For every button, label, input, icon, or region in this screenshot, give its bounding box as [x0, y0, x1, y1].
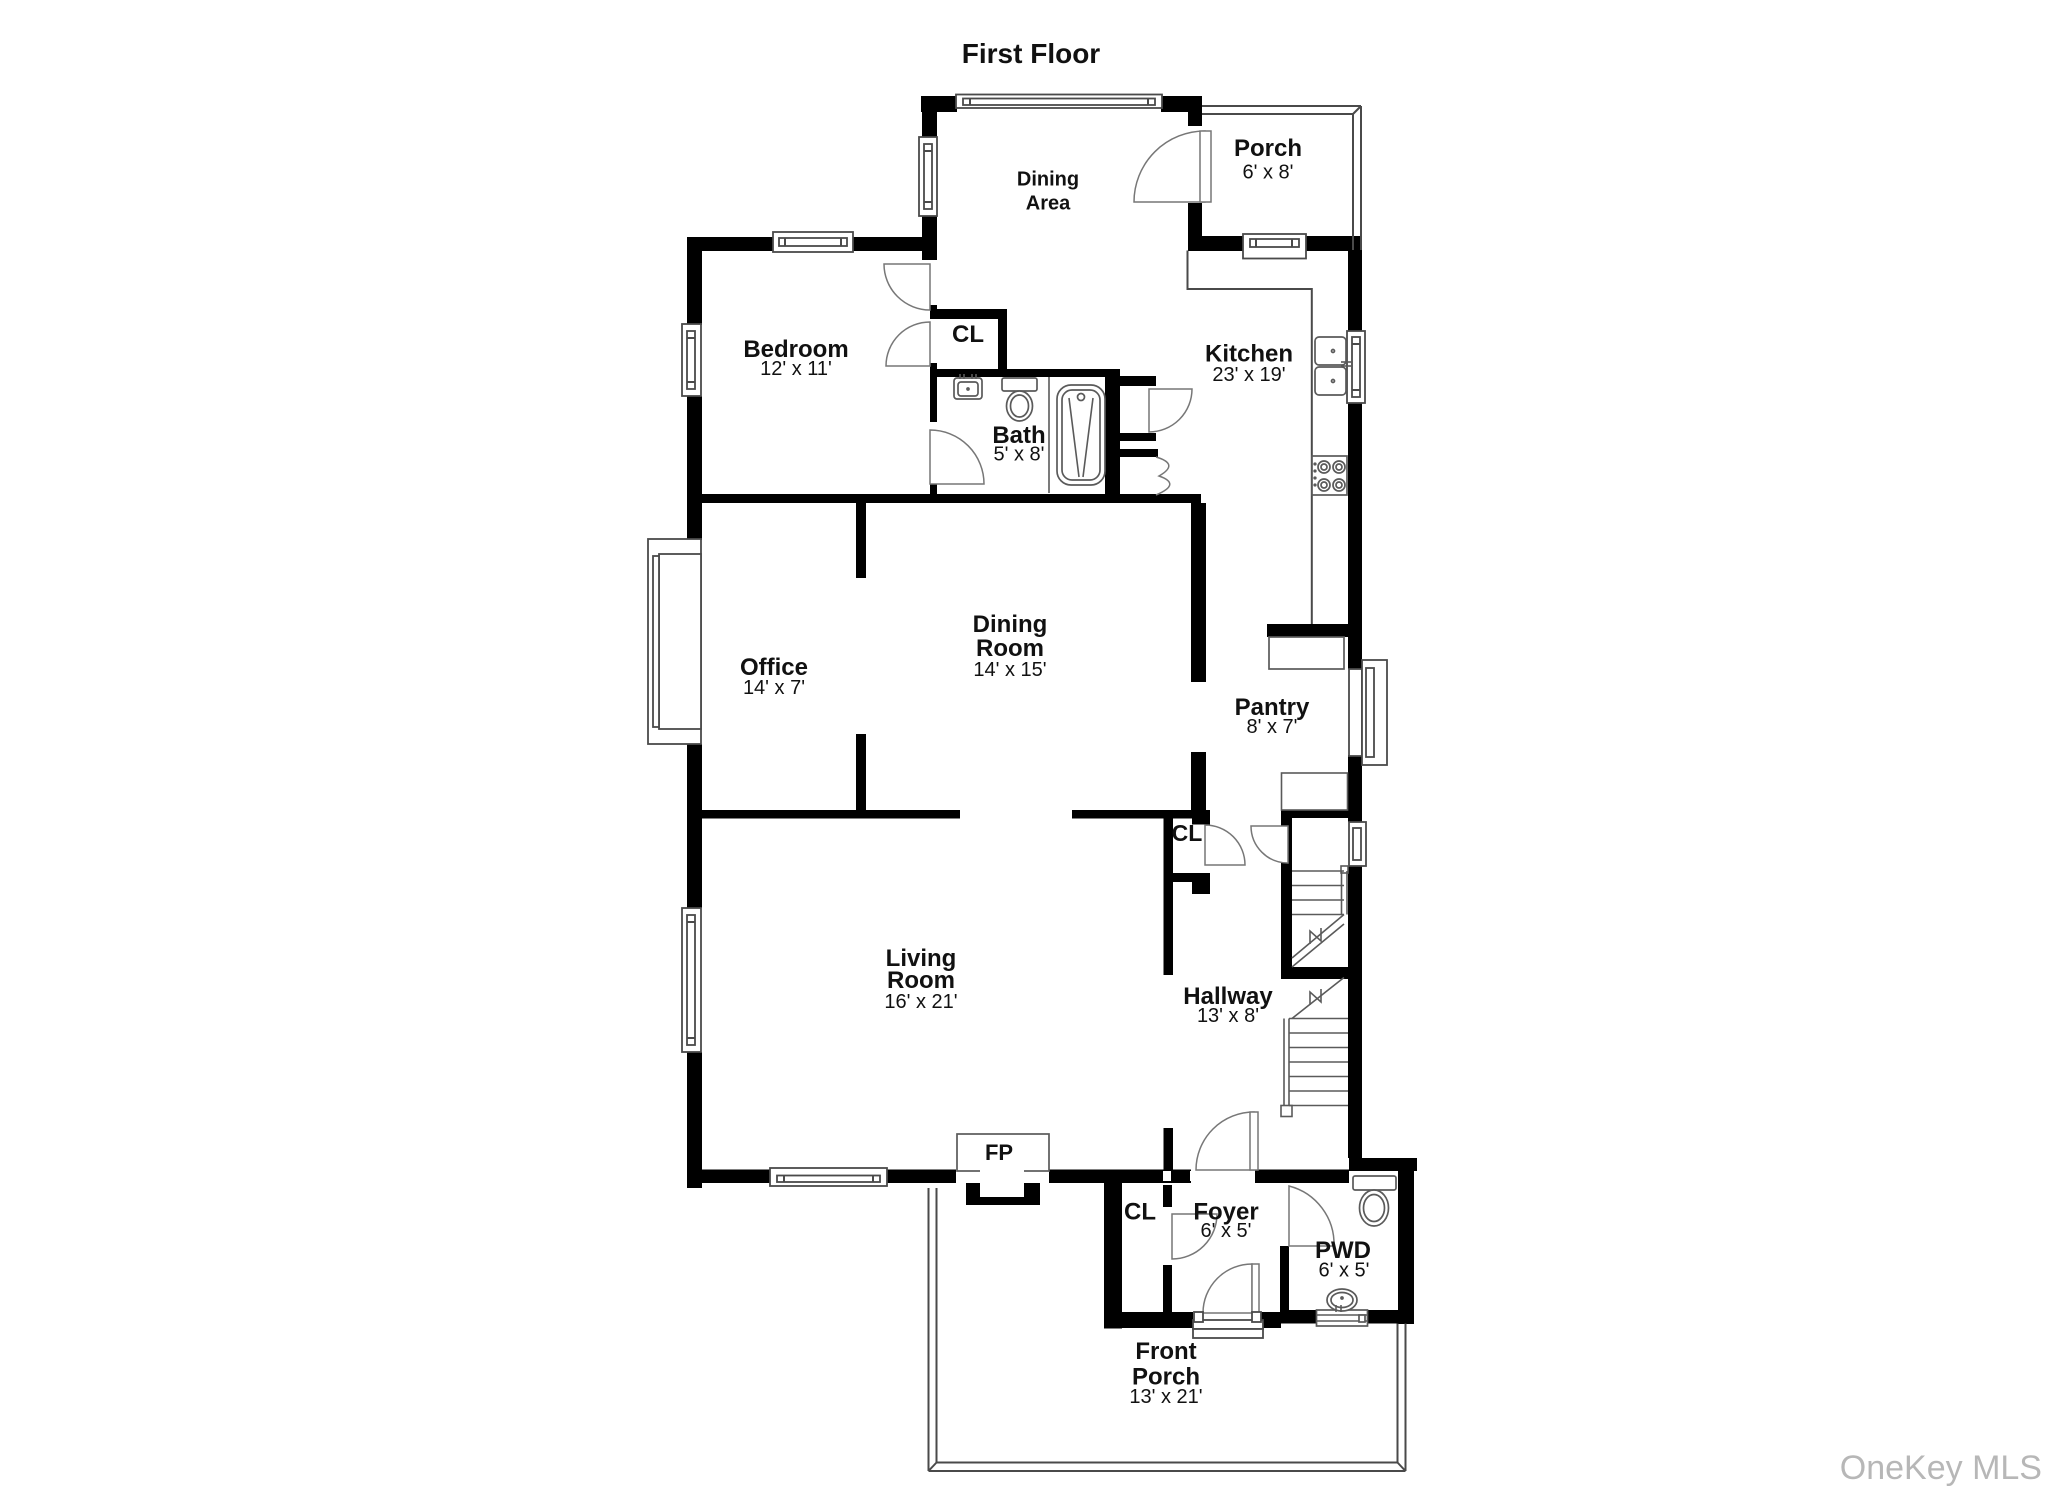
svg-text:CL: CL: [1172, 820, 1203, 846]
svg-text:8' x 7': 8' x 7': [1247, 716, 1298, 738]
svg-text:12' x 11': 12' x 11': [760, 358, 832, 380]
svg-text:CL: CL: [952, 321, 984, 348]
svg-text:First Floor: First Floor: [962, 38, 1101, 69]
svg-text:Room: Room: [887, 967, 955, 994]
svg-text:Area: Area: [1026, 193, 1071, 215]
svg-text:6' x 8': 6' x 8': [1243, 162, 1294, 184]
svg-text:Front: Front: [1135, 1338, 1196, 1365]
svg-text:OneKey MLS: OneKey MLS: [1840, 1449, 2042, 1487]
svg-text:13' x 8': 13' x 8': [1197, 1005, 1259, 1027]
svg-text:23' x 19': 23' x 19': [1212, 364, 1285, 386]
svg-text:CL: CL: [1124, 1199, 1156, 1226]
svg-text:6' x 5': 6' x 5': [1319, 1260, 1370, 1282]
svg-text:6' x 5': 6' x 5': [1201, 1220, 1252, 1242]
svg-text:14' x 15': 14' x 15': [973, 659, 1046, 681]
svg-text:14' x 7': 14' x 7': [743, 677, 805, 699]
svg-text:Dining: Dining: [973, 611, 1048, 638]
svg-text:5' x 8': 5' x 8': [994, 444, 1045, 466]
svg-text:13' x 21': 13' x 21': [1129, 1386, 1202, 1408]
svg-text:16' x 21': 16' x 21': [884, 991, 957, 1013]
svg-text:Room: Room: [976, 635, 1044, 662]
svg-text:Dining: Dining: [1017, 169, 1079, 191]
svg-text:Porch: Porch: [1234, 135, 1302, 162]
svg-text:FP: FP: [985, 1140, 1013, 1165]
